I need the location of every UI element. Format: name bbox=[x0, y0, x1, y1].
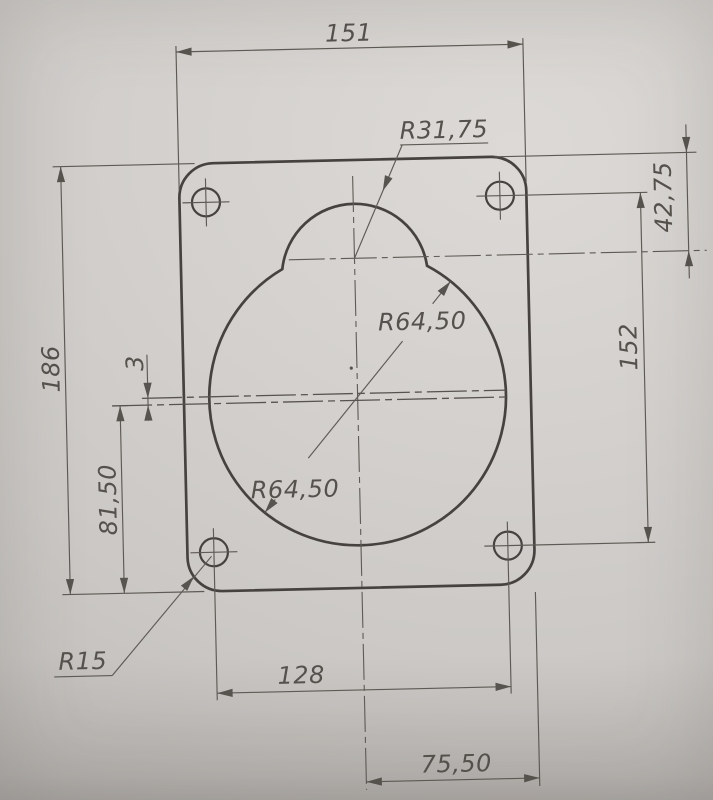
radius-label-r15: R15 bbox=[58, 647, 107, 676]
dim-label-81-50: 81,50 bbox=[93, 464, 123, 536]
dim-slot-width: 3 bbox=[121, 355, 153, 422]
dim-label-128: 128 bbox=[277, 661, 325, 690]
crosshair-bottom-right-h-extension bbox=[484, 542, 655, 546]
dim-center-to-right-edge: 75,50 bbox=[362, 592, 540, 790]
dim-label-152: 152 bbox=[614, 323, 643, 371]
crosshair-top-right-v bbox=[499, 172, 500, 220]
dim-arc-center-from-top: 42,75 bbox=[494, 124, 699, 283]
radius-label-r64-50-lower: R64,50 bbox=[251, 474, 340, 504]
radius-corner: R15 bbox=[52, 556, 215, 677]
crosshair-top-left-v bbox=[205, 178, 206, 226]
center-point-mark bbox=[350, 366, 353, 369]
crosshair-bottom-left-v-extension bbox=[213, 528, 217, 700]
dim-slot-from-bottom: 81,50 bbox=[92, 406, 128, 594]
radius-main-circle: R64,50 R64,50 bbox=[246, 278, 471, 515]
technical-drawing: 151 186 81,50 3 152 bbox=[0, 0, 713, 800]
crosshair-bottom-right-v-extension bbox=[507, 522, 511, 694]
radius-label-r64-50-upper: R64,50 bbox=[378, 306, 467, 336]
photographed-technical-drawing: 151 186 81,50 3 152 bbox=[0, 0, 713, 800]
radius-top-arc: R31,75 bbox=[351, 115, 491, 258]
crosshair-top-right-h-extension bbox=[476, 192, 647, 196]
dim-label-151: 151 bbox=[325, 19, 373, 48]
dim-hole-spacing-vertical: 152 bbox=[611, 192, 652, 543]
vertical-centerline bbox=[353, 176, 367, 790]
dim-label-3: 3 bbox=[121, 355, 149, 371]
centerlines bbox=[107, 167, 713, 795]
dim-label-42-75: 42,75 bbox=[649, 161, 679, 233]
radius-label-r31-75: R31,75 bbox=[399, 115, 488, 145]
dim-label-75-50: 75,50 bbox=[420, 749, 492, 779]
arc-center-horizontal-centerline bbox=[289, 250, 707, 259]
dim-label-186: 186 bbox=[37, 345, 66, 393]
slot-upper-line bbox=[142, 390, 506, 398]
